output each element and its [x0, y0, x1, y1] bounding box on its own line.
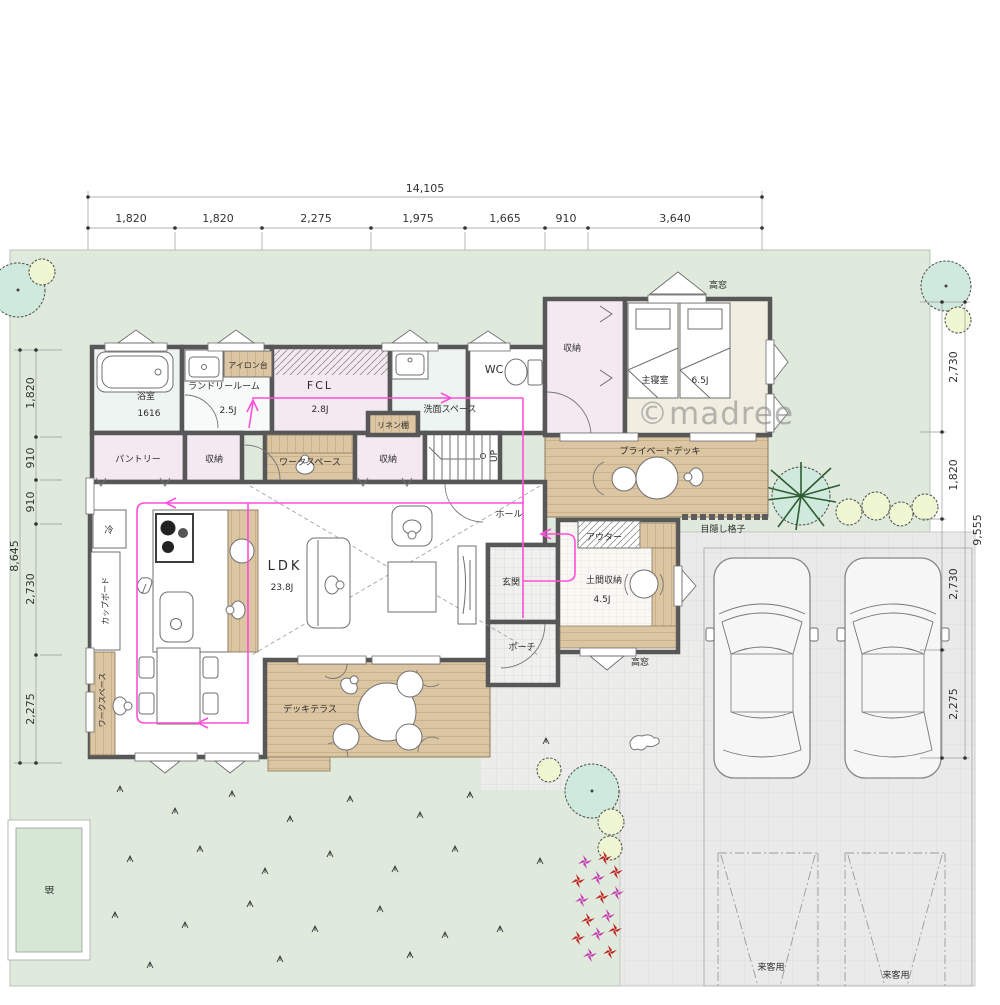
dim-top-seg: 910 — [556, 212, 577, 225]
stairs-up-label: UP — [490, 449, 500, 462]
visitor-parking-label: 来客用 — [757, 961, 784, 973]
outer-closet-label: アウター — [586, 532, 622, 543]
bedroom-label: 主寝室 — [641, 374, 668, 386]
closet2-label: 収納 — [205, 453, 223, 465]
dim-right-seg: 2,730 — [947, 568, 960, 600]
pantry-label: パントリー — [115, 454, 160, 465]
floor-plan-page: 畑 来客用 来客用 プライベート — [0, 0, 1000, 1000]
dim-left-seg: 910 — [24, 492, 37, 513]
wash-space-label: 洗面スペース — [424, 403, 477, 415]
dim-left-total: 8,645 — [8, 540, 21, 572]
bathtub-icon — [97, 352, 173, 392]
hall-label: ホール — [495, 509, 522, 520]
ldk-size: 23.8J — [271, 583, 294, 593]
high-window-bottom-label: 高窓 — [631, 656, 649, 668]
deck-terrace: デッキテラス — [265, 660, 490, 771]
private-deck-label: プライベートデッキ — [619, 445, 700, 457]
dim-right-total: 9,555 — [971, 514, 984, 546]
dim-top-seg: 1,665 — [489, 212, 521, 225]
laundry-size: 2.5J — [220, 406, 237, 416]
car-1 — [706, 558, 818, 778]
dim-left-seg: 1,820 — [24, 377, 37, 409]
fcl-hanger-hatch — [274, 349, 388, 375]
bathroom-size: 1616 — [138, 409, 161, 419]
dim-left-seg: 910 — [24, 448, 37, 469]
doma-label: 土間収納 — [586, 574, 622, 586]
kitchen-island — [153, 510, 258, 652]
stairs — [425, 433, 500, 482]
doma-bench-top — [640, 523, 676, 548]
kitchen-stool — [230, 539, 254, 563]
dim-top-seg: 1,975 — [402, 212, 434, 225]
laundry-label: ランドリールーム — [188, 381, 260, 392]
room-bedroom-closet — [545, 299, 625, 435]
closet3-label: 収納 — [379, 453, 397, 465]
madree-watermark: ©madree — [637, 396, 794, 432]
fcl-size: 2.8J — [312, 405, 329, 415]
high-window-top-label: 高窓 — [709, 279, 727, 291]
fcl-label: FCL — [307, 379, 333, 392]
toilet-icon — [505, 359, 542, 385]
car-2 — [837, 558, 949, 778]
floor-plan-drawing: 畑 来客用 来客用 プライベート — [0, 0, 1000, 1000]
bathroom-label: 浴室 — [137, 390, 155, 402]
wash-basin-icon — [392, 350, 428, 379]
genkan-label: 玄関 — [502, 576, 520, 588]
workspace2-label: ワークスペース — [98, 673, 107, 728]
tv-board — [458, 546, 476, 624]
dim-top-seg: 1,820 — [202, 212, 234, 225]
closet1-label: 収納 — [563, 342, 581, 354]
lattice-label: 目隠し格子 — [700, 523, 745, 535]
dim-top-seg: 2,275 — [300, 212, 332, 225]
laundry-sink-icon — [185, 350, 223, 381]
cupboard-label: カップボード — [101, 577, 110, 625]
dim-left-seg: 2,730 — [24, 573, 37, 605]
dim-right-seg: 2,730 — [947, 351, 960, 383]
dimension-top: 14,105 1,820 1,820 2,275 1,975 1,665 910… — [86, 182, 764, 250]
fridge-label: 冷 — [104, 524, 113, 536]
dim-top-seg: 1,820 — [115, 212, 147, 225]
dim-left-seg: 2,275 — [24, 693, 37, 725]
bedroom-size: 6.5J — [692, 376, 709, 386]
private-deck: プライベートデッキ — [545, 437, 768, 517]
wc-label: WC — [485, 363, 504, 376]
vegetable-field: 畑 — [8, 820, 90, 960]
linen-shelf-label: リネン棚 — [377, 420, 409, 430]
doma-bench-bottom — [560, 626, 676, 648]
workspace-desk — [267, 435, 353, 453]
dim-top-total: 14,105 — [406, 182, 445, 195]
field-label: 畑 — [44, 885, 56, 894]
deck-terrace-label: デッキテラス — [283, 703, 337, 715]
living-table — [388, 562, 436, 612]
dim-right-seg: 2,275 — [947, 688, 960, 720]
ironing-board-label: アイロン台 — [228, 360, 268, 370]
dim-top-seg: 3,640 — [659, 212, 691, 225]
dim-right-seg: 1,820 — [947, 459, 960, 491]
visitor-parking-label: 来客用 — [882, 969, 909, 981]
doma-size: 4.5J — [594, 595, 611, 605]
workspace-label: ワークスペース — [279, 457, 341, 468]
porch-label: ポーチ — [508, 642, 535, 653]
ldk-label: LDK — [268, 559, 303, 574]
